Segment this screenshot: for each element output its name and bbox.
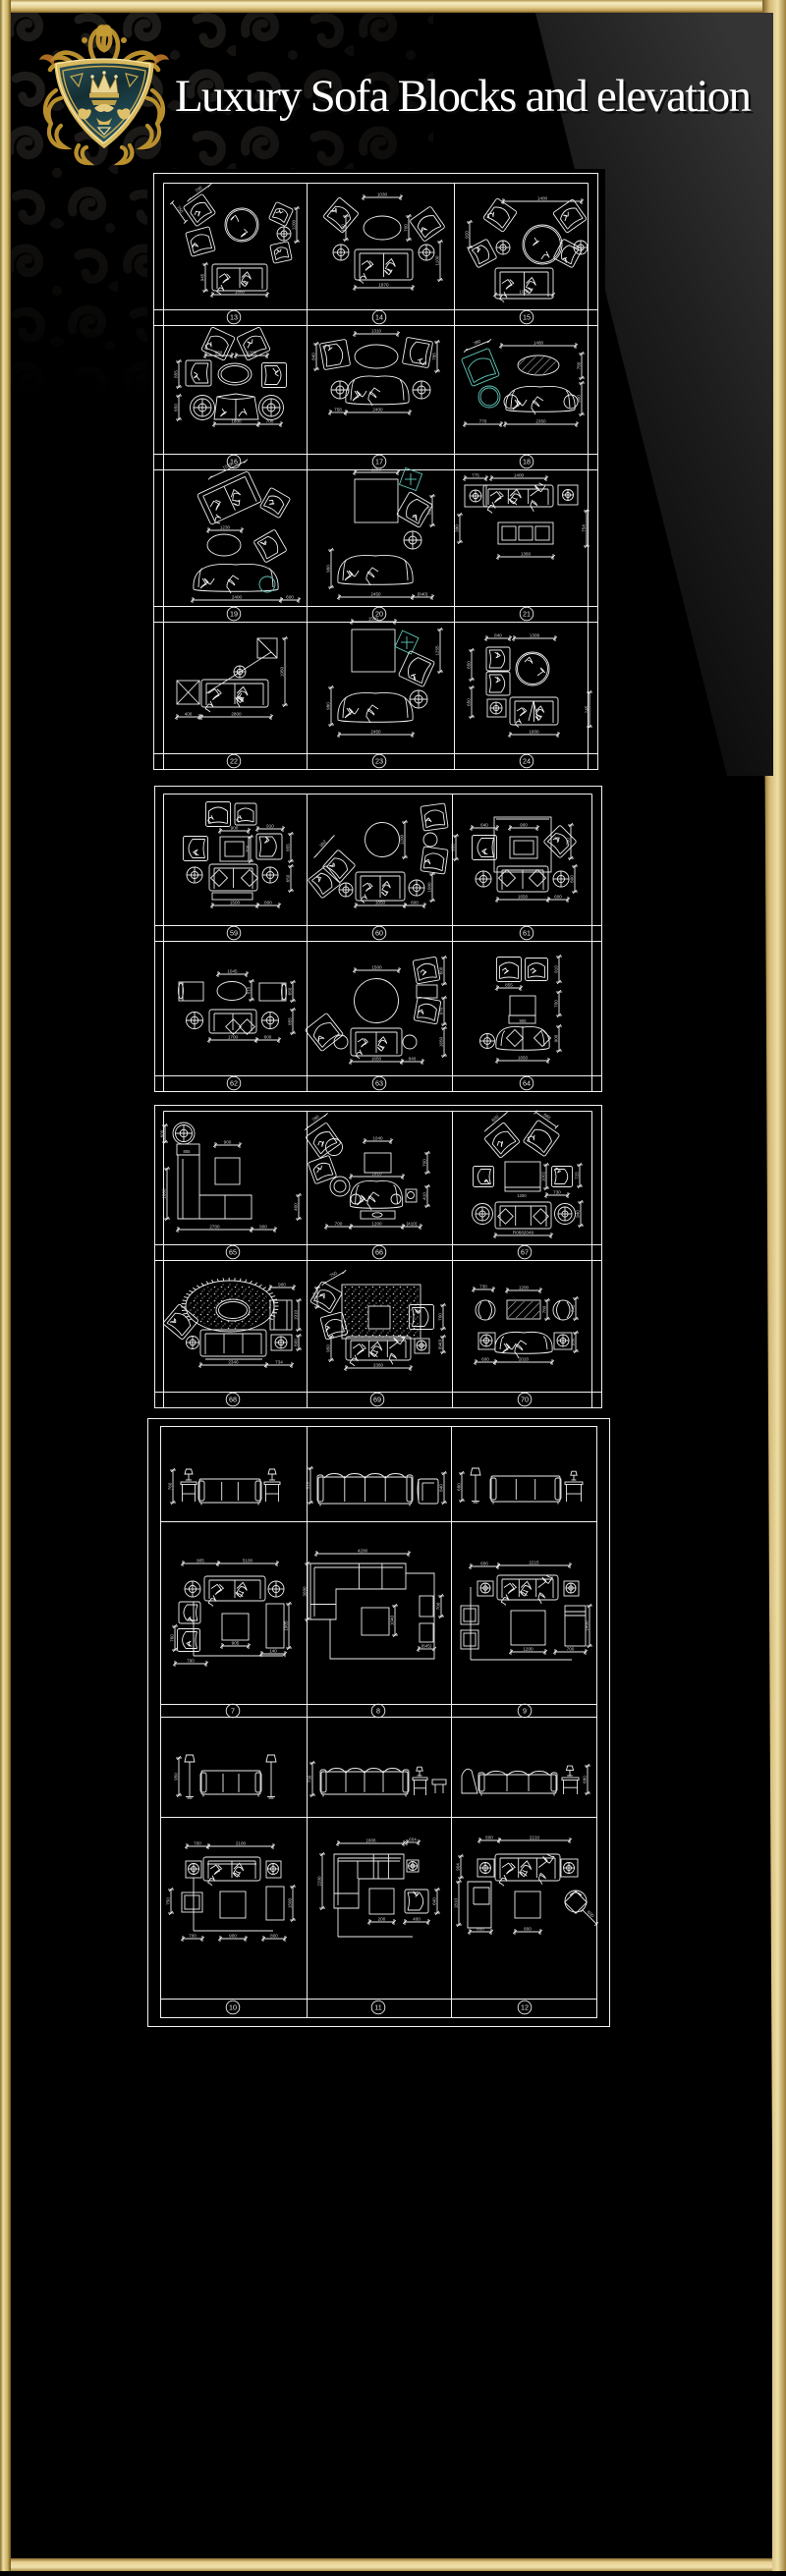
svg-text:2700: 2700 bbox=[209, 1224, 220, 1229]
svg-text:600: 600 bbox=[264, 1034, 272, 1039]
svg-text:3080: 3080 bbox=[302, 1586, 307, 1597]
svg-text:1810: 1810 bbox=[453, 1897, 458, 1908]
svg-text:1255: 1255 bbox=[434, 645, 439, 656]
svg-text:900: 900 bbox=[278, 1282, 286, 1287]
svg-text:1040: 1040 bbox=[389, 1615, 394, 1625]
svg-text:810: 810 bbox=[426, 507, 431, 515]
svg-text:1800: 1800 bbox=[231, 418, 242, 423]
svg-text:600: 600 bbox=[477, 1926, 484, 1931]
svg-text:65: 65 bbox=[229, 1247, 237, 1256]
svg-text:855: 855 bbox=[285, 844, 290, 851]
svg-text:650: 650 bbox=[466, 698, 471, 706]
svg-text:21: 21 bbox=[523, 609, 531, 618]
svg-text:2020: 2020 bbox=[519, 1356, 530, 1361]
svg-text:67: 67 bbox=[521, 1247, 529, 1256]
svg-text:10: 10 bbox=[229, 2002, 237, 2011]
svg-text:950: 950 bbox=[173, 1773, 178, 1781]
svg-text:700: 700 bbox=[245, 845, 250, 852]
svg-text:785: 785 bbox=[431, 353, 436, 360]
svg-text:1910: 1910 bbox=[371, 1171, 382, 1176]
svg-text:1905: 1905 bbox=[283, 1620, 288, 1631]
svg-text:Luxury Sofa Blocks and elevati: Luxury Sofa Blocks and elevation bbox=[175, 71, 752, 122]
svg-text:780: 780 bbox=[576, 361, 581, 369]
svg-text:R0682049: R0682049 bbox=[513, 1230, 534, 1234]
svg-text:1910: 1910 bbox=[293, 1309, 298, 1320]
svg-text:1650: 1650 bbox=[518, 894, 529, 899]
svg-text:2210: 2210 bbox=[530, 1835, 540, 1839]
svg-text:1650: 1650 bbox=[438, 1036, 443, 1047]
svg-text:23: 23 bbox=[375, 756, 383, 765]
svg-text:700: 700 bbox=[194, 1840, 201, 1845]
svg-text:600: 600 bbox=[480, 1561, 488, 1565]
svg-text:64: 64 bbox=[523, 1078, 531, 1087]
svg-text:960: 960 bbox=[325, 565, 330, 573]
svg-text:59: 59 bbox=[230, 928, 238, 937]
svg-text:790: 790 bbox=[187, 1658, 195, 1663]
svg-text:2360: 2360 bbox=[373, 1362, 384, 1367]
svg-text:700: 700 bbox=[421, 1159, 426, 1167]
svg-text:1230: 1230 bbox=[220, 524, 231, 529]
svg-text:1400: 1400 bbox=[514, 472, 525, 477]
svg-text:(640): (640) bbox=[418, 591, 428, 596]
svg-text:4200: 4200 bbox=[358, 1548, 368, 1553]
svg-text:945: 945 bbox=[199, 273, 204, 281]
svg-text:600: 600 bbox=[293, 1339, 298, 1346]
svg-text:910: 910 bbox=[266, 823, 274, 828]
svg-text:200: 200 bbox=[378, 1916, 386, 1921]
svg-text:758: 758 bbox=[334, 407, 342, 411]
svg-text:1400: 1400 bbox=[537, 195, 548, 200]
svg-text:1600: 1600 bbox=[529, 729, 539, 734]
svg-text:734: 734 bbox=[275, 1359, 283, 1364]
svg-text:905: 905 bbox=[196, 1558, 204, 1562]
svg-text:1480: 1480 bbox=[533, 340, 544, 345]
svg-text:800: 800 bbox=[264, 900, 272, 904]
svg-text:1870: 1870 bbox=[378, 282, 389, 287]
svg-text:600: 600 bbox=[411, 900, 419, 904]
svg-text:17: 17 bbox=[375, 457, 383, 466]
svg-text:810: 810 bbox=[305, 1481, 309, 1489]
svg-text:1309: 1309 bbox=[530, 632, 540, 637]
svg-text:1045: 1045 bbox=[227, 968, 238, 973]
svg-text:9: 9 bbox=[523, 1706, 527, 1715]
svg-text:1200: 1200 bbox=[517, 1193, 527, 1198]
svg-text:(410): (410) bbox=[407, 1221, 418, 1226]
svg-text:900: 900 bbox=[231, 825, 239, 830]
svg-text:900: 900 bbox=[229, 1933, 237, 1938]
svg-text:69: 69 bbox=[373, 1395, 381, 1403]
svg-text:900: 900 bbox=[224, 1139, 232, 1144]
svg-text:970: 970 bbox=[438, 1007, 443, 1014]
svg-text:2350: 2350 bbox=[535, 418, 546, 423]
svg-text:855: 855 bbox=[287, 1017, 292, 1025]
svg-text:600: 600 bbox=[286, 594, 294, 599]
svg-text:1700: 1700 bbox=[228, 1034, 239, 1039]
svg-text:2200: 2200 bbox=[316, 1876, 321, 1887]
svg-text:13: 13 bbox=[230, 312, 238, 321]
svg-text:1450: 1450 bbox=[311, 1291, 316, 1302]
svg-text:1000: 1000 bbox=[426, 882, 431, 893]
svg-text:855: 855 bbox=[184, 1149, 192, 1154]
svg-text:2400: 2400 bbox=[232, 594, 243, 599]
svg-text:900: 900 bbox=[553, 1034, 558, 1042]
svg-text:1200: 1200 bbox=[399, 834, 404, 845]
svg-text:754: 754 bbox=[581, 524, 586, 532]
svg-text:(640): (640) bbox=[437, 1339, 442, 1349]
svg-text:600: 600 bbox=[438, 966, 443, 974]
svg-text:15: 15 bbox=[523, 312, 531, 321]
svg-text:770: 770 bbox=[479, 418, 487, 423]
svg-text:600: 600 bbox=[159, 1129, 164, 1137]
svg-text:840: 840 bbox=[409, 1056, 417, 1061]
svg-text:2450: 2450 bbox=[370, 591, 381, 596]
svg-text:2100: 2100 bbox=[236, 1840, 247, 1845]
svg-text:400: 400 bbox=[413, 1916, 421, 1921]
svg-text:780: 780 bbox=[541, 1305, 546, 1313]
svg-text:900: 900 bbox=[520, 1018, 528, 1023]
svg-text:855: 855 bbox=[173, 370, 178, 378]
svg-text:750: 750 bbox=[165, 1897, 170, 1905]
svg-text:245: 245 bbox=[584, 705, 589, 713]
svg-text:24: 24 bbox=[523, 756, 531, 765]
svg-text:22: 22 bbox=[230, 756, 238, 765]
svg-text:400: 400 bbox=[185, 711, 193, 716]
svg-text:1650: 1650 bbox=[371, 1056, 382, 1061]
svg-text:745: 745 bbox=[570, 1304, 575, 1312]
svg-text:11: 11 bbox=[374, 2002, 381, 2011]
svg-text:730: 730 bbox=[479, 1284, 487, 1288]
svg-text:1650: 1650 bbox=[375, 900, 386, 904]
svg-text:7: 7 bbox=[231, 1706, 235, 1715]
svg-text:5100: 5100 bbox=[243, 1558, 253, 1562]
svg-text:700: 700 bbox=[403, 224, 408, 232]
svg-text:1030: 1030 bbox=[377, 192, 388, 196]
svg-text:1002: 1002 bbox=[540, 1171, 545, 1181]
svg-text:950: 950 bbox=[325, 1344, 330, 1352]
svg-text:700: 700 bbox=[437, 1313, 442, 1321]
svg-text:68: 68 bbox=[229, 1395, 237, 1403]
svg-text:12: 12 bbox=[521, 2002, 529, 2011]
svg-text:2400: 2400 bbox=[372, 407, 383, 411]
svg-text:410: 410 bbox=[421, 1192, 426, 1200]
svg-text:390: 390 bbox=[454, 524, 459, 532]
svg-text:70: 70 bbox=[521, 1395, 529, 1403]
svg-text:650: 650 bbox=[287, 987, 292, 995]
svg-text:730: 730 bbox=[553, 1189, 561, 1194]
svg-text:1200: 1200 bbox=[519, 1285, 530, 1289]
svg-text:958: 958 bbox=[450, 844, 455, 851]
svg-text:450: 450 bbox=[340, 224, 345, 232]
svg-text:760: 760 bbox=[167, 1482, 172, 1490]
svg-text:680: 680 bbox=[582, 1776, 587, 1783]
svg-text:1040: 1040 bbox=[372, 1135, 383, 1140]
svg-text:63: 63 bbox=[375, 1078, 383, 1087]
svg-text:730: 730 bbox=[307, 1775, 311, 1782]
svg-text:800: 800 bbox=[569, 875, 574, 883]
svg-text:700: 700 bbox=[435, 1602, 440, 1610]
svg-text:66: 66 bbox=[375, 1247, 383, 1256]
svg-text:400: 400 bbox=[293, 1203, 298, 1211]
svg-text:604: 604 bbox=[409, 1836, 417, 1841]
svg-text:2340: 2340 bbox=[228, 1359, 239, 1364]
svg-text:140: 140 bbox=[269, 1648, 277, 1653]
svg-text:860: 860 bbox=[215, 350, 223, 355]
svg-text:2800: 2800 bbox=[231, 711, 242, 716]
svg-text:905: 905 bbox=[232, 1640, 240, 1645]
svg-text:855: 855 bbox=[505, 982, 513, 987]
svg-text:600: 600 bbox=[481, 1356, 489, 1361]
svg-text:840: 840 bbox=[438, 1484, 443, 1492]
svg-text:640: 640 bbox=[431, 1897, 436, 1905]
svg-text:1360: 1360 bbox=[521, 551, 532, 556]
svg-text:1200: 1200 bbox=[523, 1646, 533, 1651]
svg-text:910: 910 bbox=[553, 965, 558, 973]
svg-text:1800: 1800 bbox=[161, 1188, 166, 1199]
svg-text:1100: 1100 bbox=[434, 255, 439, 265]
svg-text:700: 700 bbox=[266, 418, 274, 423]
svg-text:840: 840 bbox=[310, 353, 315, 360]
svg-text:2215: 2215 bbox=[529, 1560, 539, 1564]
svg-text:900: 900 bbox=[576, 395, 581, 403]
svg-text:600: 600 bbox=[554, 894, 562, 899]
svg-text:760: 760 bbox=[169, 1634, 174, 1642]
svg-text:1200: 1200 bbox=[371, 1221, 382, 1226]
svg-text:800: 800 bbox=[524, 1926, 532, 1931]
svg-text:775: 775 bbox=[472, 472, 479, 477]
svg-text:1400: 1400 bbox=[584, 1620, 589, 1631]
svg-text:904: 904 bbox=[455, 1863, 460, 1871]
svg-text:725: 725 bbox=[574, 1172, 579, 1179]
svg-text:8: 8 bbox=[376, 1706, 380, 1715]
svg-text:1650: 1650 bbox=[518, 1055, 529, 1060]
svg-text:(645): (645) bbox=[421, 1643, 432, 1648]
svg-text:1500: 1500 bbox=[230, 900, 241, 904]
svg-text:1350: 1350 bbox=[371, 466, 382, 471]
svg-text:62: 62 bbox=[230, 1078, 238, 1087]
svg-text:940: 940 bbox=[575, 1210, 580, 1218]
svg-text:640: 640 bbox=[480, 822, 488, 827]
svg-text:1500: 1500 bbox=[371, 964, 382, 969]
svg-text:14: 14 bbox=[375, 312, 383, 321]
svg-text:800: 800 bbox=[270, 1933, 278, 1938]
svg-text:840: 840 bbox=[494, 632, 502, 637]
svg-text:680: 680 bbox=[456, 1483, 461, 1491]
svg-text:515: 515 bbox=[246, 986, 251, 994]
svg-text:700: 700 bbox=[565, 838, 570, 846]
svg-text:650: 650 bbox=[285, 874, 290, 882]
svg-text:700: 700 bbox=[189, 1933, 196, 1938]
svg-text:930: 930 bbox=[570, 1338, 575, 1345]
svg-text:18: 18 bbox=[523, 457, 531, 466]
svg-text:61: 61 bbox=[523, 928, 531, 937]
svg-text:1806: 1806 bbox=[365, 1837, 376, 1842]
svg-text:700: 700 bbox=[335, 1221, 343, 1226]
svg-text:980: 980 bbox=[325, 702, 330, 710]
svg-text:700: 700 bbox=[567, 1646, 575, 1651]
svg-text:900: 900 bbox=[259, 1224, 267, 1229]
svg-text:1050: 1050 bbox=[519, 289, 530, 294]
svg-text:650: 650 bbox=[466, 661, 471, 669]
svg-text:1500: 1500 bbox=[368, 616, 379, 621]
svg-text:900: 900 bbox=[520, 822, 528, 827]
svg-text:1950: 1950 bbox=[279, 666, 284, 677]
svg-text:600: 600 bbox=[485, 1835, 493, 1839]
svg-text:1860: 1860 bbox=[235, 289, 246, 294]
svg-text:650: 650 bbox=[173, 404, 178, 411]
svg-text:1200: 1200 bbox=[247, 350, 257, 355]
svg-text:920: 920 bbox=[464, 231, 469, 239]
svg-text:1500: 1500 bbox=[287, 1897, 292, 1908]
svg-text:700: 700 bbox=[553, 1000, 558, 1008]
svg-text:19: 19 bbox=[230, 609, 238, 618]
svg-text:1310: 1310 bbox=[371, 328, 382, 333]
svg-text:1200: 1200 bbox=[291, 219, 296, 230]
svg-text:60: 60 bbox=[375, 928, 383, 937]
svg-text:2450: 2450 bbox=[370, 729, 381, 734]
